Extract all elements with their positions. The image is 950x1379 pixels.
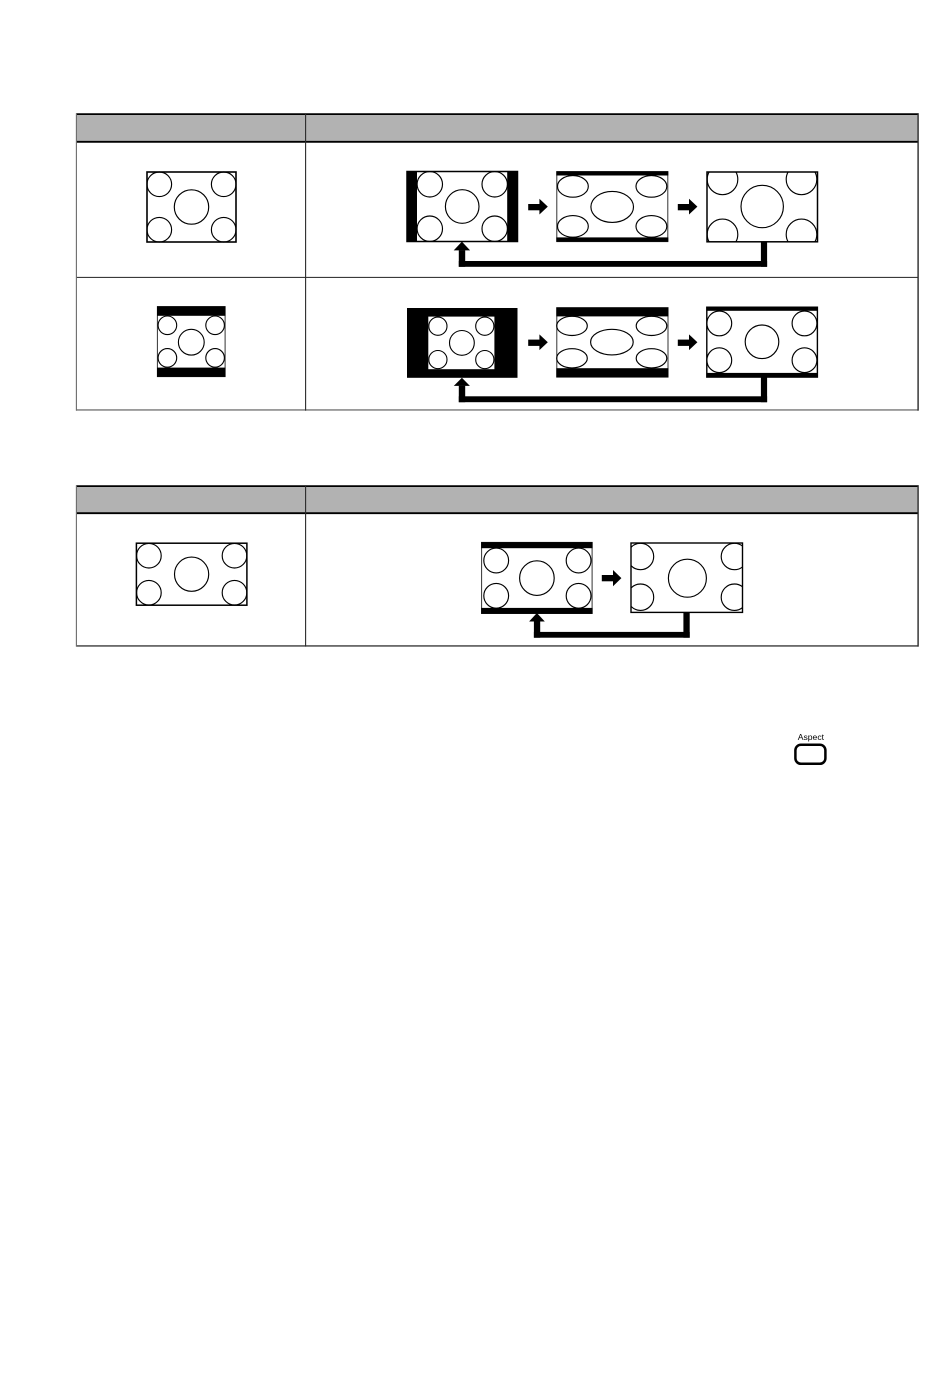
svg-text:Aspect: Aspect: [798, 732, 825, 742]
